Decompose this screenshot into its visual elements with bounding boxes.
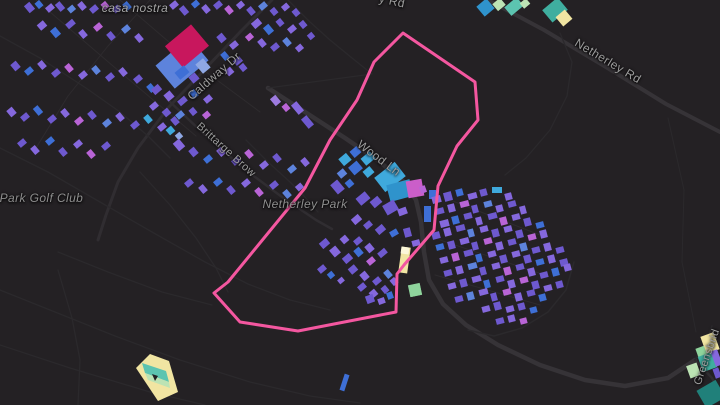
map-label-netherley-park: Netherley Park <box>263 197 348 211</box>
map-canvas[interactable]: casa nostraCaldway DrBrittarge Browy RdN… <box>0 0 720 405</box>
map-label-greensbrid: Greensbrid <box>692 327 720 386</box>
labels-layer: casa nostraCaldway DrBrittarge Browy RdN… <box>0 0 720 405</box>
map-label-wood-ln: Wood Ln <box>355 137 404 179</box>
map-label-casa-nostra: casa nostra <box>102 1 168 15</box>
map-label-brittarge-brow: Brittarge Brow <box>194 120 258 179</box>
map-label-e-park-golf-club: e Park Golf Club <box>0 191 83 205</box>
map-label-y-rd: y Rd <box>378 0 407 11</box>
map-label-caldway-dr: Caldway Dr <box>184 49 243 103</box>
map-label-netherley-rd: Netherley Rd <box>572 36 643 87</box>
